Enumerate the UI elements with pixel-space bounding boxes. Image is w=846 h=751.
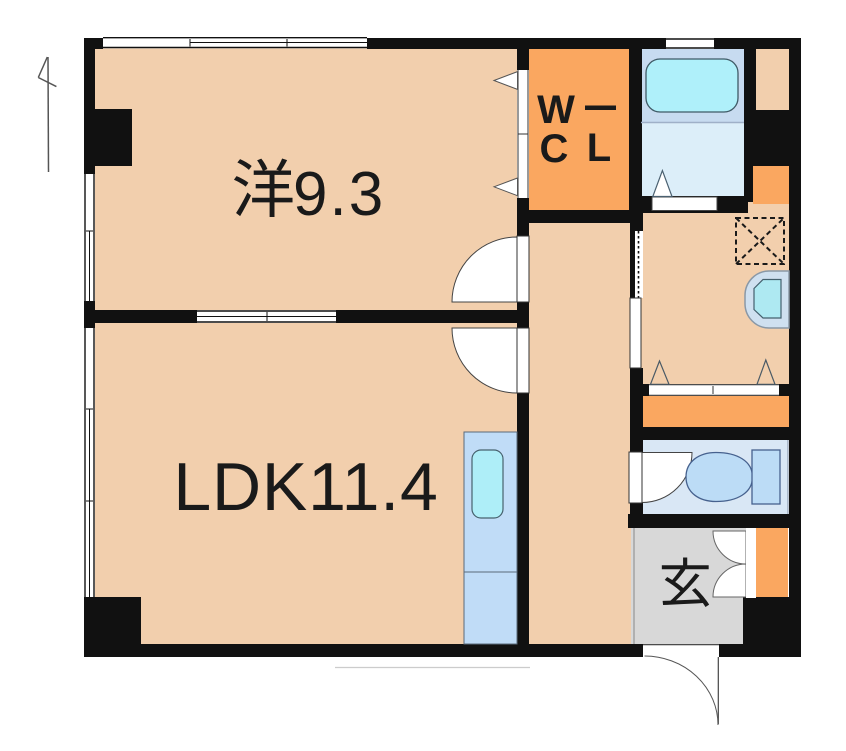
svg-text:C: C <box>540 127 569 171</box>
svg-text:LDK11.4: LDK11.4 <box>173 449 438 525</box>
svg-text:9.3: 9.3 <box>293 160 385 229</box>
svg-text:W: W <box>537 88 575 132</box>
svg-text:L: L <box>587 126 611 170</box>
